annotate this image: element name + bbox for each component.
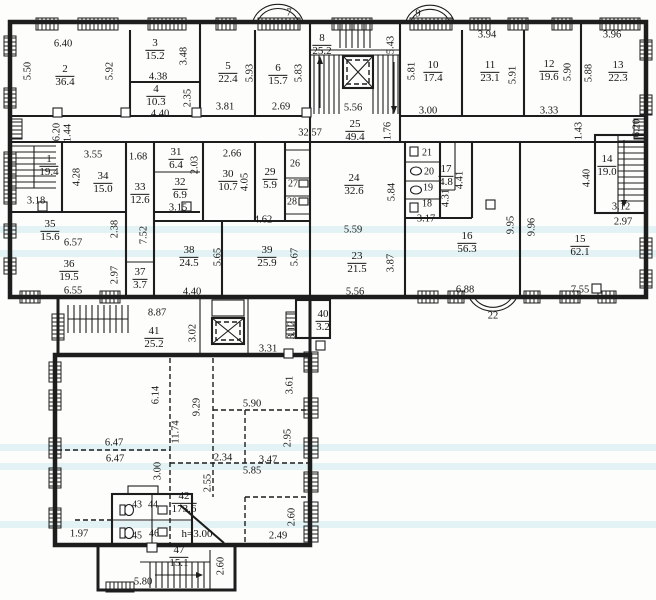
room-area: 15.7 — [268, 76, 287, 88]
dimension-label: 3.18 — [27, 196, 45, 207]
room-number: 32 — [173, 177, 188, 190]
room-15-label: 1562.1 — [570, 234, 589, 258]
dimension-label: 5.91 — [508, 66, 519, 84]
dimension-label: 3.12 — [612, 202, 630, 213]
room-39-label: 3925.9 — [257, 245, 276, 269]
room-6-label: 615.7 — [268, 63, 287, 87]
dimension-label: 3.02 — [188, 324, 199, 342]
dimension-label: 3.17 — [417, 214, 435, 225]
room-4-label: 410.3 — [146, 84, 165, 108]
room-number: 24 — [344, 173, 363, 186]
room-area: 22.4 — [218, 74, 237, 86]
room-area: 19.0 — [597, 167, 616, 179]
room-number: 13 — [608, 60, 627, 73]
room-number: 42 — [172, 491, 197, 504]
dimension-label: 4.40 — [183, 287, 201, 298]
cell-46-label: 46 — [149, 529, 159, 540]
room-number: 29 — [263, 167, 278, 180]
room-area: 12.6 — [130, 195, 149, 207]
room-number: 35 — [40, 219, 59, 232]
room-number: 37 — [133, 267, 148, 280]
dimension-label: 1.43 — [574, 122, 585, 140]
dimension-label: 1.97 — [70, 529, 88, 540]
dimension-label: 5.90 — [563, 63, 574, 81]
dimension-label: 6.55 — [64, 286, 82, 297]
dimension-label: 5.88 — [584, 64, 595, 82]
room-11-label: 1123.1 — [480, 60, 499, 84]
dimension-label: 5.92 — [105, 62, 116, 80]
room-23-label: 2321.5 — [347, 251, 366, 275]
dimension-label: 3.81 — [216, 102, 234, 113]
room-area: 23.1 — [480, 73, 499, 85]
dimension-label: 3.87 — [386, 254, 397, 272]
room-12-label: 1219.6 — [539, 59, 558, 83]
room-area: 62.1 — [570, 247, 589, 259]
room-5-label: 522.4 — [218, 61, 237, 85]
dimension-label: 3.61 — [285, 376, 296, 394]
room-36-label: 3619.5 — [59, 259, 78, 283]
room-3-label: 315.2 — [145, 38, 164, 62]
room-25-label: 2549.4 — [345, 119, 364, 143]
room-number: 14 — [597, 154, 616, 167]
room-number: 38 — [179, 245, 198, 258]
dimension-label: 4.31 — [441, 189, 452, 207]
dimension-label: 2.97 — [614, 217, 632, 228]
room-24-label: 2432.6 — [344, 173, 363, 197]
room-area: 6.9 — [173, 190, 188, 202]
dimension-label: 5.85 — [243, 466, 261, 477]
dimension-label: 5.83 — [294, 64, 305, 82]
room-number: 25 — [345, 119, 364, 132]
room-number: 2 — [55, 64, 74, 77]
dimension-label: 1.76 — [383, 122, 394, 140]
cell-44-label: 44 — [148, 500, 158, 511]
room-17-label: 174.8 — [439, 164, 454, 188]
dimension-label: 3.94 — [478, 30, 496, 41]
cell-43-label: 43 — [132, 500, 142, 511]
dimension-label: 2.95 — [283, 429, 294, 447]
dimension-label: 3.31 — [259, 344, 277, 355]
dimension-label: 5.84 — [387, 183, 398, 201]
room-number: 41 — [144, 326, 163, 339]
room-area: 19.5 — [59, 272, 78, 284]
room-number: 4 — [146, 84, 165, 97]
room-area: 4.8 — [439, 177, 454, 189]
room-number: 3 — [145, 38, 164, 51]
room-area: 3.2 — [316, 322, 331, 334]
cell-28-label: 28 — [287, 197, 297, 208]
room-41-label: 4125.2 — [144, 326, 163, 350]
room-number: 15 — [570, 234, 589, 247]
room-38-label: 3824.5 — [179, 245, 198, 269]
room-2-label: 236.4 — [55, 64, 74, 88]
height-annotation: h=3.00 — [182, 528, 213, 540]
dimension-label: 2.03 — [190, 156, 201, 174]
dimension-label: 2.38 — [110, 220, 121, 238]
room-number: 1 — [39, 154, 58, 167]
room-33-label: 3312.6 — [130, 182, 149, 206]
dimension-label: 6.20 — [52, 123, 63, 141]
room-area: 6.4 — [169, 160, 184, 172]
dimension-label: 2.35 — [183, 89, 194, 107]
room-area: 15.2 — [145, 51, 164, 63]
room-area: 32.6 — [344, 186, 363, 198]
dimension-label: 2.69 — [272, 102, 290, 113]
room-area: 10.7 — [218, 182, 237, 194]
dimension-label: 6.20 — [632, 119, 643, 137]
room-30-label: 3010.7 — [218, 169, 237, 193]
room-area: 15.0 — [93, 184, 112, 196]
room-number: 40 — [316, 309, 331, 322]
room-47-label: 4715.1 — [169, 545, 188, 569]
room-16-label: 1656.3 — [457, 231, 476, 255]
room-area: 25.2 — [144, 339, 163, 351]
room-area: 25.9 — [257, 258, 276, 270]
cell-19-label: 19 — [423, 183, 433, 194]
dimension-label: 6.14 — [151, 386, 162, 404]
cell-27-label: 27 — [288, 179, 298, 190]
cell-45-label: 45 — [132, 531, 142, 542]
dimension-label: 3.00 — [153, 462, 164, 480]
room-29-label: 295.9 — [263, 167, 278, 191]
room-number: 34 — [93, 171, 112, 184]
room-area: 24.5 — [179, 258, 198, 270]
room-32-label: 326.9 — [173, 177, 188, 201]
dimension-label: 32.57 — [298, 128, 322, 139]
labels-layer: 119.4236.4315.2410.3522.4615.7825.21017.… — [0, 0, 656, 600]
dimension-label: 7.52 — [139, 226, 150, 244]
balcony-22-label: 22 — [488, 311, 499, 322]
cell-21-label: 21 — [422, 148, 432, 159]
dimension-label: 7.55 — [571, 285, 589, 296]
room-area: 56.3 — [457, 244, 476, 256]
room-number: 11 — [480, 60, 499, 73]
balcony-7-label: 7 — [286, 8, 291, 19]
dimension-label: 5.67 — [290, 248, 301, 266]
dimension-label: 5.50 — [23, 62, 34, 80]
room-area: 49.4 — [345, 132, 364, 144]
dimension-label: 1.68 — [129, 152, 147, 163]
dimension-label: 5.43 — [386, 36, 397, 54]
room-35-label: 3515.6 — [40, 219, 59, 243]
dimension-label: 2.97 — [110, 266, 121, 284]
room-area: 22.3 — [608, 73, 627, 85]
room-number: 31 — [169, 147, 184, 160]
room-number: 30 — [218, 169, 237, 182]
dimension-label: 3.15 — [169, 203, 187, 214]
room-area: 173.6 — [172, 504, 197, 516]
dimension-label: 5.56 — [344, 103, 362, 114]
room-area: 19.4 — [39, 167, 58, 179]
dimension-label: 3.33 — [540, 106, 558, 117]
room-number: 39 — [257, 245, 276, 258]
dimension-label: 2.60 — [216, 557, 227, 575]
room-number: 23 — [347, 251, 366, 264]
dimension-label: 4.28 — [72, 168, 83, 186]
dimension-label: 6.57 — [64, 238, 82, 249]
room-number: 12 — [539, 59, 558, 72]
dimension-label: 9.96 — [527, 218, 538, 236]
dimension-label: 2.55 — [203, 474, 214, 492]
dimension-label: 5.90 — [243, 399, 261, 410]
dimension-label: 3.47 — [259, 455, 277, 466]
room-34-label: 3415.0 — [93, 171, 112, 195]
room-13-label: 1322.3 — [608, 60, 627, 84]
room-number: 5 — [218, 61, 237, 74]
dimension-label: 1.44 — [63, 124, 74, 142]
dimension-label: 5.56 — [346, 287, 364, 298]
room-area: 3.7 — [133, 280, 148, 292]
dimension-label: 4.41 — [455, 171, 466, 189]
room-10-label: 1017.4 — [423, 60, 442, 84]
room-area: 19.6 — [539, 72, 558, 84]
room-number: 16 — [457, 231, 476, 244]
dimension-label: 6.40 — [54, 39, 72, 50]
room-37-label: 373.7 — [133, 267, 148, 291]
room-area: 15.6 — [40, 232, 59, 244]
room-area: 10.3 — [146, 97, 165, 109]
dimension-label: 3.48 — [179, 47, 190, 65]
dimension-label: 6.47 — [106, 454, 124, 465]
room-area: 36.4 — [55, 77, 74, 89]
room-area: 15.1 — [169, 558, 188, 570]
room-number: 36 — [59, 259, 78, 272]
dimension-label: 3.00 — [419, 106, 437, 117]
balcony-9-label: 9 — [415, 9, 420, 20]
dimension-label: 5.80 — [134, 577, 152, 588]
dimension-label: 2.66 — [223, 149, 241, 160]
room-area: 25.2 — [312, 46, 331, 58]
room-number: 17 — [439, 164, 454, 177]
dimension-label: 3.96 — [603, 30, 621, 41]
dimension-label: 11.74 — [171, 420, 182, 443]
dimension-label: 5.65 — [213, 248, 224, 266]
cell-18-label: 18 — [422, 199, 432, 210]
dimension-label: 6.47 — [105, 438, 123, 449]
dimension-label: 3.55 — [84, 150, 102, 161]
room-14-label: 1419.0 — [597, 154, 616, 178]
dimension-label: 5.59 — [344, 225, 362, 236]
room-40-label: 403.2 — [316, 309, 331, 333]
dimension-label: 4.40 — [582, 169, 593, 187]
dimension-label: 3.12 — [287, 321, 298, 339]
room-area: 17.4 — [423, 73, 442, 85]
dimension-label: 4.40 — [151, 109, 169, 120]
room-area: 21.5 — [347, 264, 366, 276]
cell-26-label: 26 — [290, 159, 300, 170]
room-number: 8 — [312, 33, 331, 46]
room-area: 5.9 — [263, 180, 278, 192]
dimension-label: 2.34 — [214, 453, 232, 464]
dimension-label: 5.81 — [407, 62, 418, 80]
room-1-label: 119.4 — [39, 154, 58, 178]
dimension-label: 8.87 — [148, 308, 166, 319]
room-number: 10 — [423, 60, 442, 73]
room-31-label: 316.4 — [169, 147, 184, 171]
dimension-label: 9.95 — [506, 216, 517, 234]
room-number: 33 — [130, 182, 149, 195]
dimension-label: 2.49 — [269, 531, 287, 542]
cell-20-label: 20 — [424, 167, 434, 178]
room-number: 47 — [169, 545, 188, 558]
dimension-label: 6.88 — [456, 285, 474, 296]
dimension-label: 9.29 — [192, 398, 203, 416]
room-number: 6 — [268, 63, 287, 76]
room-42-label: 42173.6 — [172, 491, 197, 515]
dimension-label: 5.93 — [245, 64, 256, 82]
floor-plan-page: 119.4236.4315.2410.3522.4615.7825.21017.… — [0, 0, 656, 600]
dimension-label: 4.62 — [254, 215, 272, 226]
dimension-label: 4.05 — [240, 173, 251, 191]
dimension-label: 2.60 — [287, 508, 298, 526]
room-8-label: 825.2 — [312, 33, 331, 57]
dimension-label: 4.38 — [149, 72, 167, 83]
